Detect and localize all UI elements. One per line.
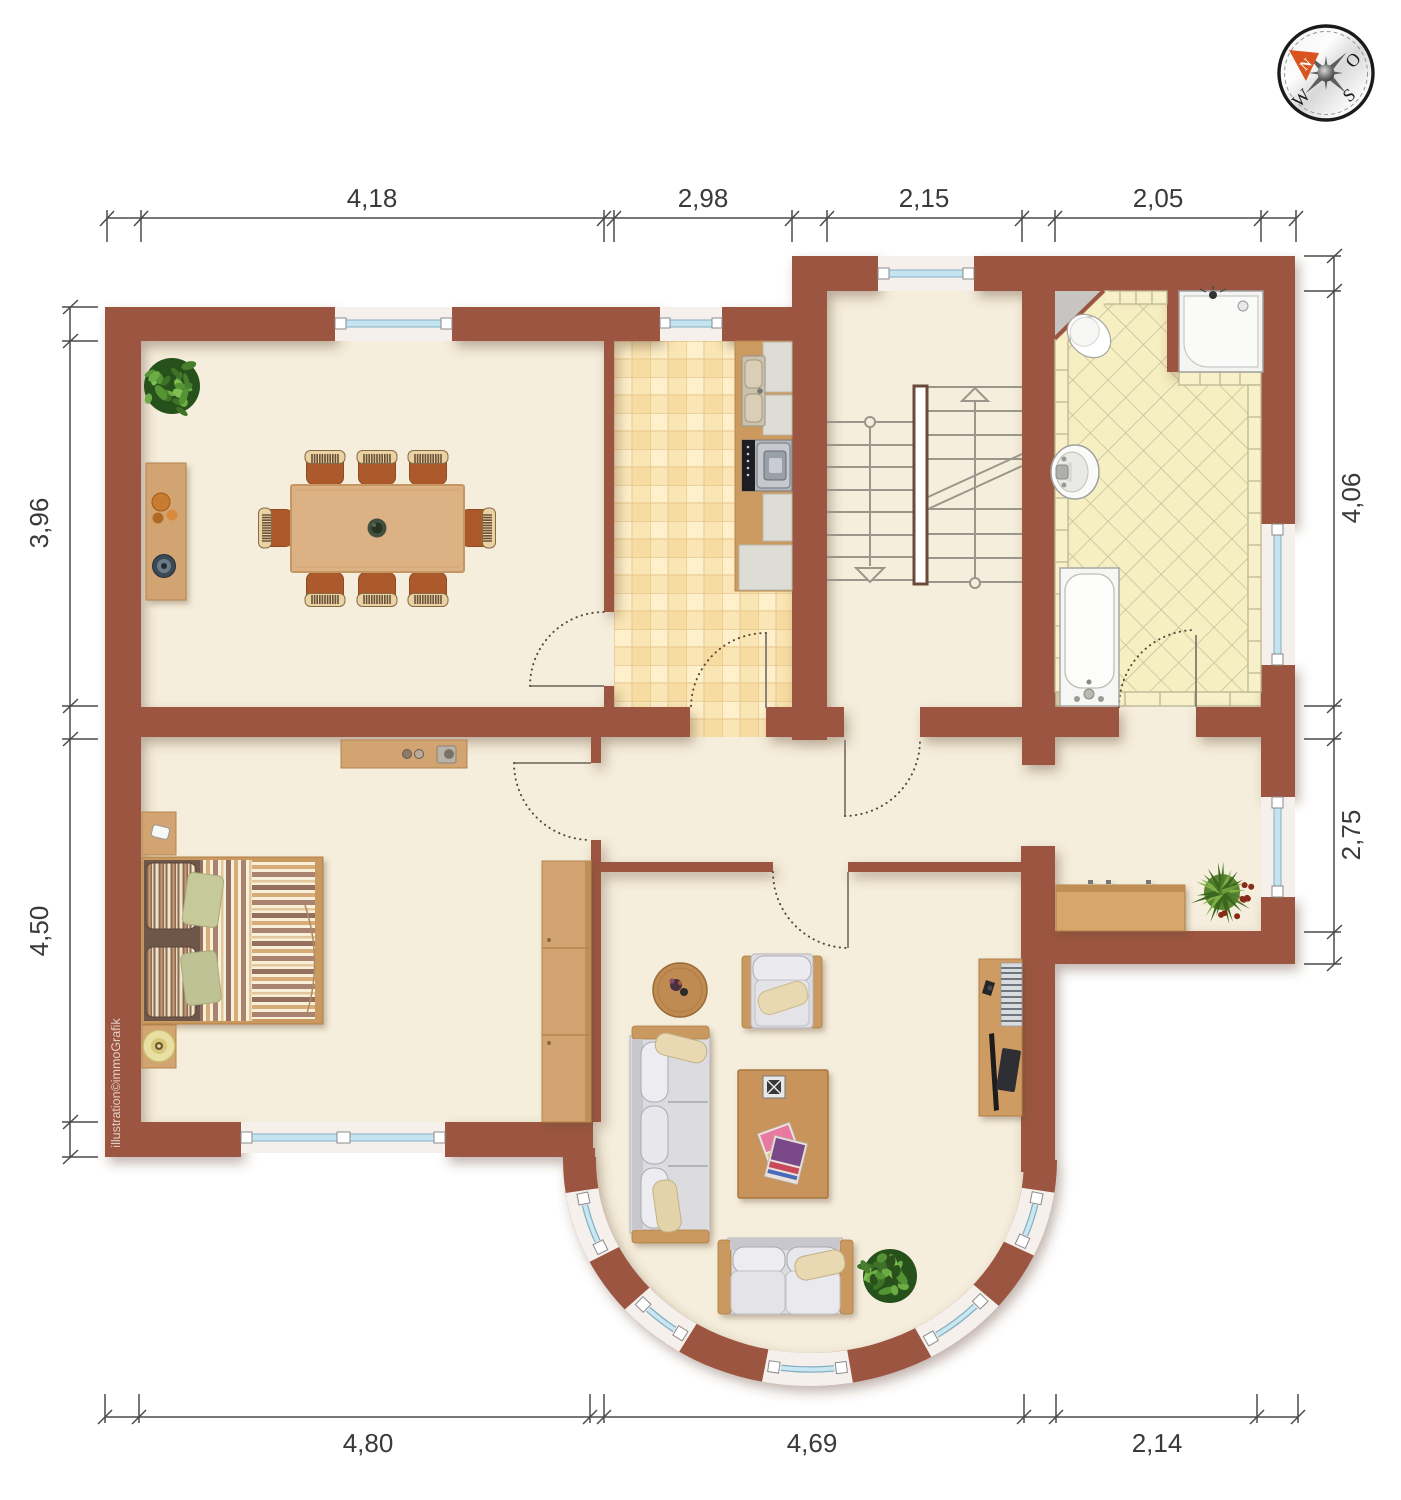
svg-text:2,14: 2,14	[1132, 1428, 1183, 1458]
svg-text:3,96: 3,96	[24, 498, 54, 549]
svg-text:4,18: 4,18	[347, 183, 398, 213]
svg-text:4,50: 4,50	[24, 906, 54, 957]
svg-text:2,15: 2,15	[899, 183, 950, 213]
svg-text:2,05: 2,05	[1133, 183, 1184, 213]
svg-text:4,69: 4,69	[787, 1428, 838, 1458]
svg-text:illustration©immoGrafik: illustration©immoGrafik	[109, 1018, 123, 1148]
svg-text:2,98: 2,98	[678, 183, 729, 213]
svg-text:4,06: 4,06	[1336, 473, 1366, 524]
svg-text:2,75: 2,75	[1336, 810, 1366, 861]
svg-text:4,80: 4,80	[343, 1428, 394, 1458]
